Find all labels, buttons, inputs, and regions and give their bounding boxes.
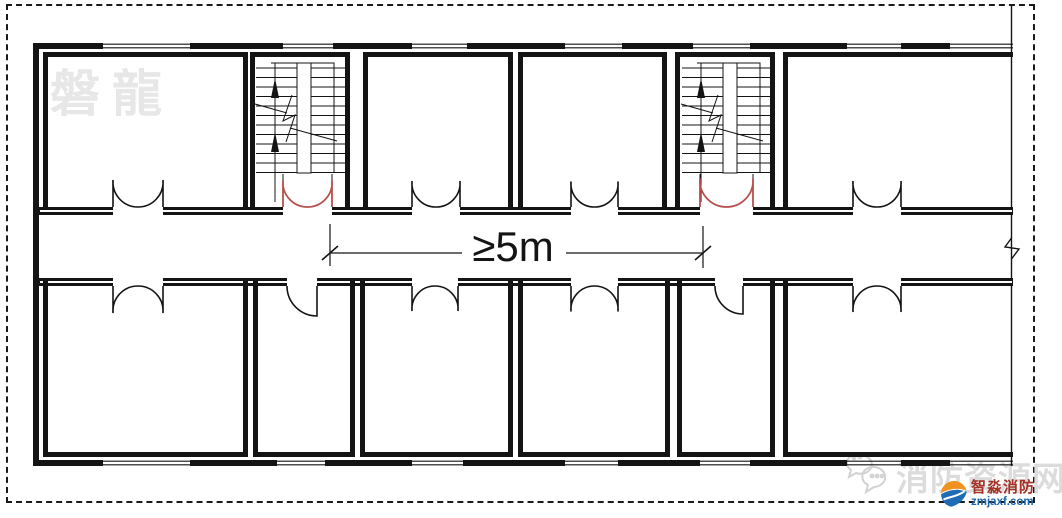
stair-stringer	[297, 63, 311, 173]
room-doors-top	[113, 180, 901, 207]
exterior-wall-left	[33, 43, 39, 466]
room-door	[853, 286, 901, 312]
building-cut-line	[1005, 6, 1019, 466]
staircase-2	[681, 63, 770, 206]
room-door	[571, 286, 618, 312]
stair-up-arrow-icon	[271, 78, 279, 98]
room-door	[853, 181, 901, 207]
room-door	[113, 286, 163, 313]
room-door-single	[287, 286, 317, 316]
dimension-label: ≥5m	[456, 226, 570, 268]
screenshot-canvas: 磐龍 消防资源网	[0, 0, 1062, 518]
exit-doors	[283, 179, 753, 208]
logo-company-name: 智淼消防	[971, 480, 1035, 496]
room-door-single	[715, 286, 743, 314]
bottom-rooms-walls	[43, 278, 1013, 457]
stair-stringer	[723, 63, 737, 173]
room-door	[113, 180, 163, 207]
room-door	[412, 286, 458, 311]
logo: 智淼消防 zmjaxf.com	[940, 480, 1035, 508]
logo-icon	[940, 480, 968, 508]
room-door	[571, 182, 618, 208]
exit-door-staircase-1	[283, 181, 332, 208]
room-doors-bottom	[113, 286, 901, 316]
exit-door-staircase-2	[700, 179, 753, 208]
room-door	[412, 181, 460, 207]
top-rooms-walls	[43, 52, 1013, 215]
logo-website: zmjaxf.com	[971, 496, 1035, 508]
stair-up-arrow-icon	[697, 78, 705, 98]
